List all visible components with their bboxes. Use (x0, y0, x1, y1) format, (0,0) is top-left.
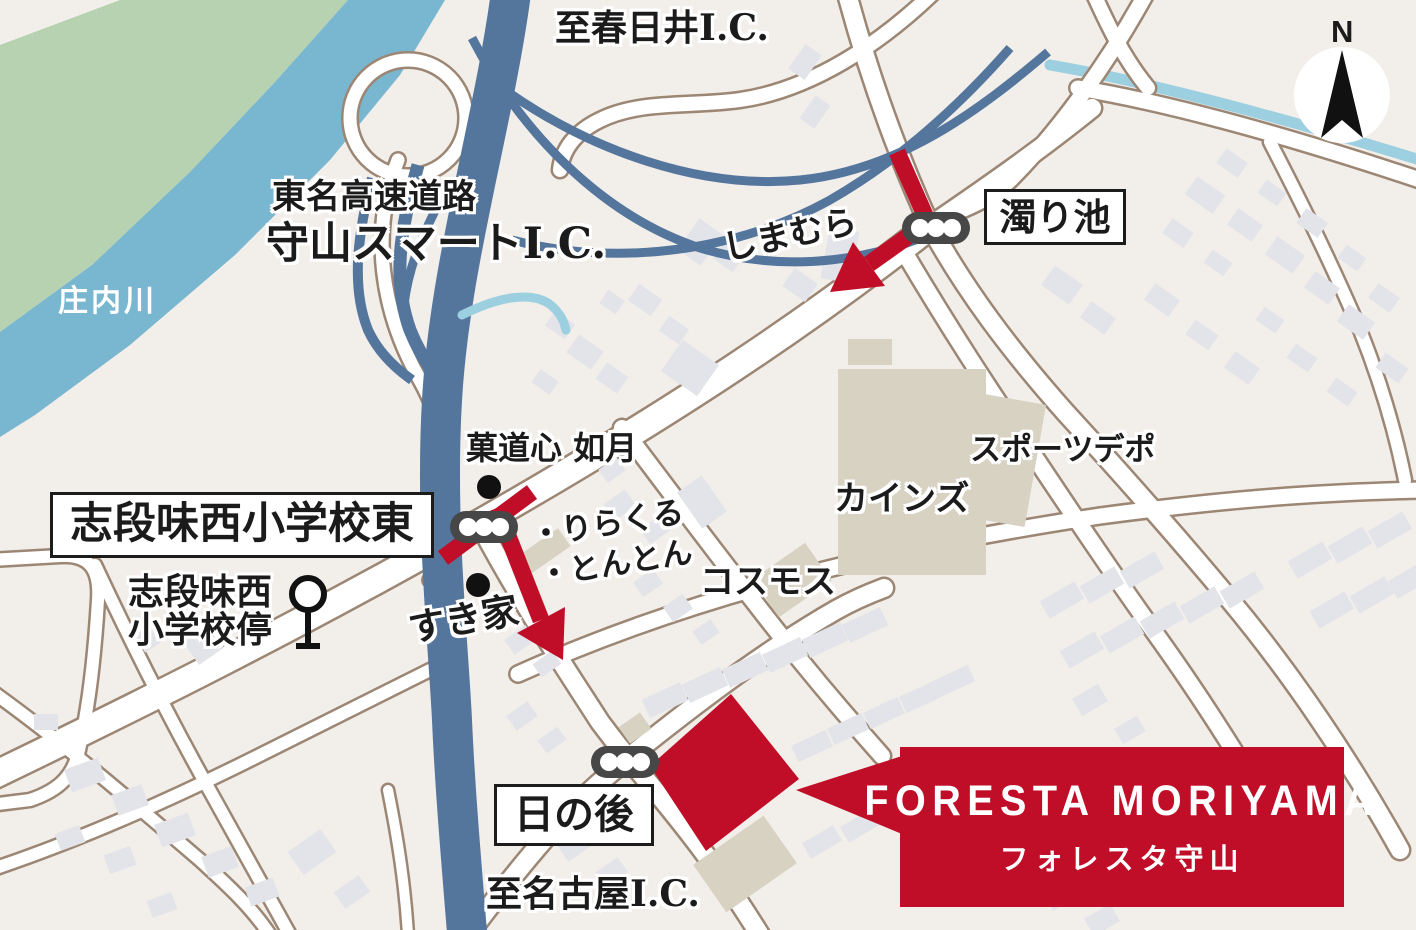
label-box-nigori-ike: 濁り池 (984, 189, 1126, 245)
label-to-nagoya-ic: 至名古屋I.C. (486, 876, 700, 914)
building (1072, 684, 1108, 716)
building (566, 334, 603, 369)
label-cainz: カインズ (834, 482, 969, 518)
building (1368, 511, 1413, 548)
traffic-light-icon (450, 511, 518, 543)
building (1040, 581, 1085, 618)
building (863, 697, 905, 729)
bus-stop-line2: 小学校停 (128, 609, 272, 651)
building (1286, 344, 1317, 373)
building (147, 892, 178, 918)
label-cosmos: コスモス (700, 565, 836, 601)
building (103, 846, 136, 874)
access-map: 至春日井I.C. 東名高速道路 守山スマートI.C. 庄内川 濁り池 しまむら … (0, 0, 1416, 930)
building (506, 701, 538, 731)
building (599, 290, 625, 315)
building (802, 825, 842, 859)
building (791, 730, 833, 762)
building (848, 339, 892, 365)
label-box-school-east: 志段味西小学校東 (50, 492, 434, 558)
building (1080, 301, 1116, 335)
building (1326, 378, 1357, 407)
label-shonai-river: 庄内川 (58, 286, 157, 318)
building (538, 727, 567, 754)
destination-callout: FORESTA MORIYAMA フォレスタ守山 (900, 747, 1344, 907)
building (34, 714, 58, 730)
destination-name-en: FORESTA MORIYAMA (865, 777, 1380, 826)
building (1338, 245, 1367, 272)
building (1227, 208, 1263, 242)
poi-dot-icon (477, 475, 501, 499)
building (899, 681, 941, 713)
building (1288, 541, 1333, 578)
building (1310, 591, 1355, 628)
building (531, 369, 558, 395)
traffic-light-icon (902, 212, 970, 244)
building (1060, 631, 1105, 668)
label-to-kasugai-ic: 至春日井I.C. (555, 10, 769, 48)
building (1265, 236, 1305, 274)
building (288, 829, 337, 875)
building (1162, 218, 1194, 248)
building (1185, 176, 1225, 214)
label-sports-depo: スポーツデポ (970, 434, 1155, 467)
building (800, 95, 831, 128)
building (659, 316, 689, 345)
building (1114, 716, 1146, 745)
building (1368, 283, 1400, 313)
label-smart-ic: 守山スマートI.C. (266, 222, 606, 267)
building (1256, 307, 1285, 334)
building (1224, 351, 1260, 385)
building (1041, 265, 1083, 304)
label-expressway-name: 東名高速道路 (272, 180, 476, 216)
building (596, 362, 629, 393)
traffic-light-icon (591, 746, 659, 778)
building (692, 619, 719, 645)
north-arrow-icon (1294, 47, 1390, 143)
building (1328, 526, 1373, 563)
destination-name-jp: フォレスタ守山 (999, 836, 1244, 878)
building (1185, 320, 1218, 351)
building (933, 665, 975, 697)
building (1084, 904, 1120, 930)
building (1144, 283, 1180, 317)
building (1216, 148, 1248, 178)
building (1204, 250, 1233, 277)
building (1350, 576, 1395, 613)
building (628, 284, 662, 316)
label-kadoshin-kisaragi: 菓道心 如月 (466, 432, 637, 466)
label-bus-stop: 志段味西 小学校停 (128, 574, 272, 650)
label-box-hinoato: 日の後 (494, 784, 654, 846)
building (334, 875, 370, 909)
bus-stop-line1: 志段味西 (128, 571, 272, 613)
label-north: N (1331, 16, 1353, 49)
